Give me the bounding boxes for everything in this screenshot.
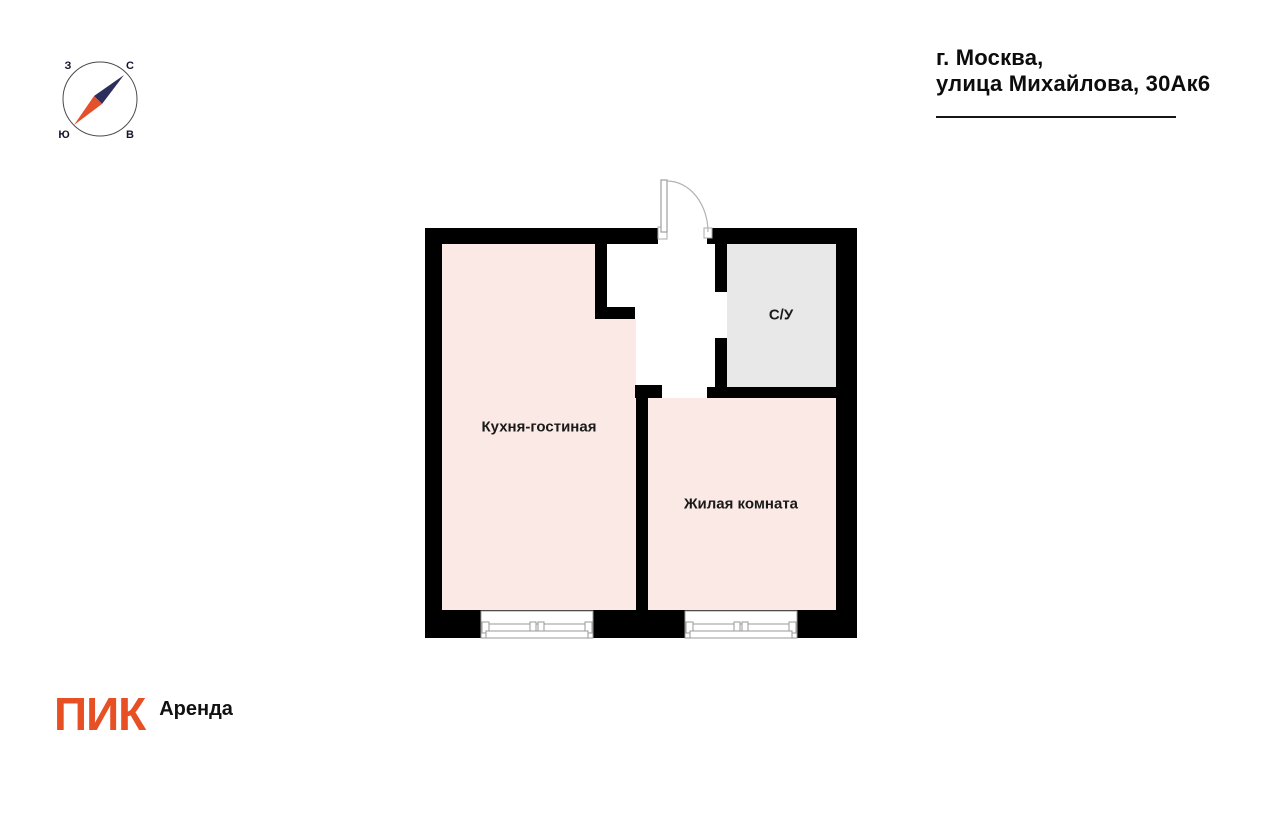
floorplan-svg: Кухня-гостиная Жилая комната С/У [425, 170, 857, 640]
wall-bathroom-left-top [715, 244, 727, 292]
wall-right [836, 228, 857, 638]
compass-needle-north [94, 75, 124, 104]
door-swing-arc [667, 181, 708, 232]
wall-left [425, 228, 442, 638]
compass-label-west: З [65, 60, 72, 72]
room-label-living: Жилая комната [683, 496, 799, 513]
room-kitchen-living-extension [595, 319, 636, 610]
compass-needle-south [74, 96, 102, 125]
entrance-door [658, 180, 712, 239]
compass-label-south: Ю [58, 129, 69, 141]
compass-label-east: В [126, 129, 134, 141]
address-line-1: г. Москва, [936, 45, 1210, 71]
window-sill [486, 631, 588, 638]
pik-logo-text: ПИК [54, 694, 145, 734]
wall-living-top [707, 387, 857, 398]
room-label-kitchen-living: Кухня-гостиная [482, 419, 597, 436]
wall-kitchen-stub [595, 307, 635, 319]
address-line-2: улица Михайлова, 30Ак6 [936, 71, 1210, 97]
room-label-bathroom: С/У [769, 307, 794, 324]
floorplan: Кухня-гостиная Жилая комната С/У [425, 170, 857, 645]
wall-room-divider [636, 385, 648, 638]
wall-top-right [707, 228, 857, 244]
divider-rule [936, 116, 1176, 118]
brand-suffix: Аренда [159, 698, 233, 720]
window-kitchen [481, 611, 593, 638]
compass: З С Ю В [56, 55, 146, 147]
compass-label-north: С [126, 60, 134, 72]
floorplan-page: З С Ю В г. Москва, улица Михайлова, 30Ак… [0, 0, 1280, 821]
wall-top-left [425, 228, 658, 244]
compass-icon: З С Ю В [56, 55, 146, 147]
brand-logo: ПИК Аренда [54, 694, 233, 734]
window-living [685, 611, 797, 638]
door-leaf [661, 180, 667, 232]
window-sill [690, 631, 792, 638]
address-block: г. Москва, улица Михайлова, 30Ак6 [936, 45, 1210, 118]
